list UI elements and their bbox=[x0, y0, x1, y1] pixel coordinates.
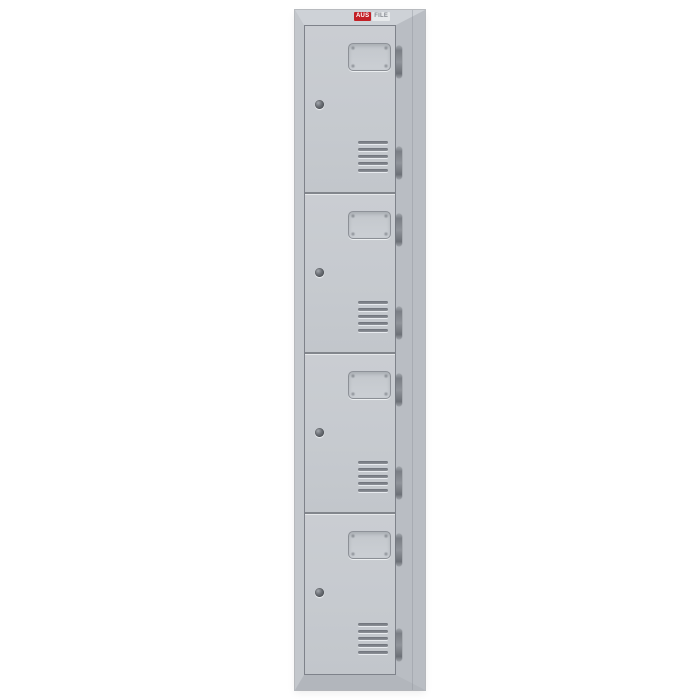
ventilation-slats bbox=[358, 301, 388, 332]
vent-slat bbox=[358, 141, 388, 144]
hinge-top-icon bbox=[396, 534, 402, 566]
vent-slat bbox=[358, 322, 388, 325]
vent-slat bbox=[358, 644, 388, 647]
recessed-handle bbox=[348, 371, 391, 399]
brand-logo-secondary: FILE bbox=[372, 12, 390, 21]
locker-door-3 bbox=[305, 352, 395, 512]
vent-slat bbox=[358, 329, 388, 332]
brand-logo-primary: AUS bbox=[354, 12, 371, 21]
ventilation-slats bbox=[358, 461, 388, 492]
hinge-bottom-icon bbox=[396, 629, 402, 661]
vent-slat bbox=[358, 169, 388, 172]
vent-slat bbox=[358, 162, 388, 165]
recessed-handle bbox=[348, 43, 391, 71]
vent-slat bbox=[358, 651, 388, 654]
cam-lock-icon bbox=[315, 100, 324, 109]
cam-lock-icon bbox=[315, 428, 324, 437]
hinge-bottom-icon bbox=[396, 467, 402, 499]
vent-slat bbox=[358, 489, 388, 492]
vent-slat bbox=[358, 301, 388, 304]
ventilation-slats bbox=[358, 623, 388, 654]
cam-lock-icon bbox=[315, 588, 324, 597]
frame-side-seam bbox=[412, 10, 413, 690]
vent-slat bbox=[358, 461, 388, 464]
recessed-handle bbox=[348, 531, 391, 559]
locker-door-1 bbox=[305, 26, 395, 192]
vent-slat bbox=[358, 623, 388, 626]
vent-slat bbox=[358, 308, 388, 311]
locker-cabinet: AUS FILE bbox=[295, 10, 425, 690]
hinge-top-icon bbox=[396, 46, 402, 78]
vent-slat bbox=[358, 482, 388, 485]
product-photo-scene: AUS FILE bbox=[0, 0, 700, 700]
vent-slat bbox=[358, 148, 388, 151]
hinge-bottom-icon bbox=[396, 307, 402, 339]
hinge-top-icon bbox=[396, 214, 402, 246]
vent-slat bbox=[358, 315, 388, 318]
hinge-bottom-icon bbox=[396, 147, 402, 179]
vent-slat bbox=[358, 468, 388, 471]
hinge-top-icon bbox=[396, 374, 402, 406]
locker-door-4 bbox=[305, 512, 395, 674]
door-column bbox=[304, 25, 396, 675]
recessed-handle bbox=[348, 211, 391, 239]
locker-door-2 bbox=[305, 192, 395, 352]
cam-lock-icon bbox=[315, 268, 324, 277]
vent-slat bbox=[358, 630, 388, 633]
vent-slat bbox=[358, 637, 388, 640]
ventilation-slats bbox=[358, 141, 388, 172]
vent-slat bbox=[358, 475, 388, 478]
vent-slat bbox=[358, 155, 388, 158]
brand-logo: AUS FILE bbox=[354, 12, 390, 21]
